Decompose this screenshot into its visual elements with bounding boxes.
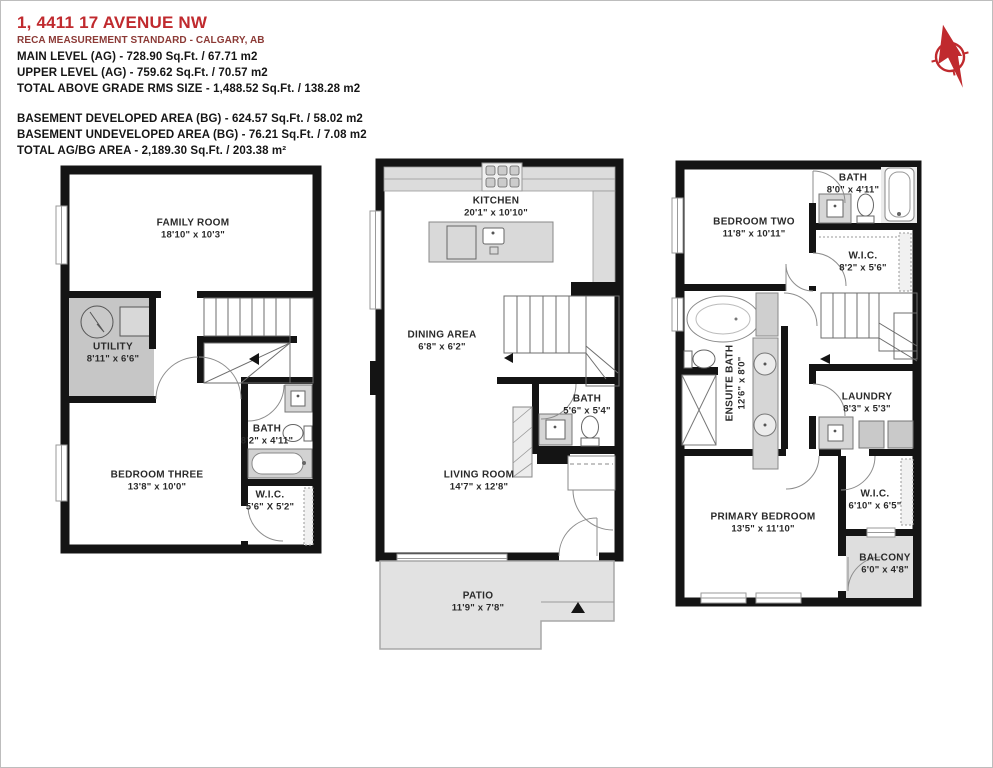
dryer-icon: [888, 421, 913, 448]
room-label-upper-bath: BATH 8'0" x 4'11": [827, 173, 879, 196]
total-agbg-area: TOTAL AG/BG AREA - 2,189.30 Sq.Ft. / 203…: [17, 143, 437, 159]
toilet-icon: [684, 350, 715, 368]
room-label-basement-wic: W.I.C. 5'6" X 5'2": [246, 490, 294, 513]
page-title: 1, 4411 17 AVENUE NW: [17, 13, 437, 33]
stove-icon: [482, 163, 522, 191]
bath-sink-icon: [285, 385, 312, 412]
main-level-area: MAIN LEVEL (AG) - 728.90 Sq.Ft. / 67.71 …: [17, 49, 437, 65]
basement-developed-area: BASEMENT DEVELOPED AREA (BG) - 624.57 Sq…: [17, 111, 437, 127]
bathtub-icon: [885, 168, 914, 221]
room-label-bedroom-two: BEDROOM TWO 11'8" x 10'11": [713, 217, 795, 240]
upper-floorplan: [672, 165, 921, 603]
shower-icon: [682, 375, 716, 445]
kitchen-island: [429, 222, 553, 262]
room-label-main-bath: BATH 5'6" x 5'4": [563, 394, 610, 417]
room-label-balcony: BALCONY 6'0" x 4'8": [859, 553, 911, 576]
room-label-basement-bath: BATH 8'2" x 4'11": [241, 424, 293, 447]
room-label-utility: UTILITY 8'11" x 6'6": [87, 342, 139, 365]
furnace-icon: [81, 306, 113, 338]
room-label-family-room: FAMILY ROOM 18'10" x 10'3": [157, 218, 230, 241]
room-label-patio: PATIO 11'9" x 7'8": [452, 591, 504, 614]
header: 1, 4411 17 AVENUE NW RECA MEASUREMENT ST…: [17, 13, 437, 159]
linen-closet-icon: [756, 293, 778, 336]
room-label-kitchen: KITCHEN 20'1" x 10'10": [464, 196, 528, 219]
toilet-icon: [857, 194, 874, 223]
double-vanity-icon: [753, 338, 778, 469]
closet-shelf-icon: [304, 488, 313, 545]
bathtub-icon: [248, 449, 312, 478]
water-tank-icon: [120, 307, 150, 336]
upper-level-area: UPPER LEVEL (AG) - 759.62 Sq.Ft. / 70.57…: [17, 65, 437, 81]
soaker-tub-icon: [687, 296, 759, 342]
floorplan-page: 1, 4411 17 AVENUE NW RECA MEASUREMENT ST…: [0, 0, 993, 768]
bath-sink-icon: [819, 194, 851, 223]
room-label-ensuite-bath: ENSUITE BATH 12'6" x 8'0": [725, 345, 748, 422]
below-grade-summary: BASEMENT DEVELOPED AREA (BG) - 624.57 Sq…: [17, 111, 437, 159]
room-label-primary-bedroom: PRIMARY BEDROOM 13'5" x 11'10": [710, 512, 815, 535]
toilet-icon: [581, 416, 599, 446]
room-label-bedroom-three: BEDROOM THREE 13'8" x 10'0": [111, 470, 204, 493]
fireplace-icon: [513, 407, 532, 477]
basement-undeveloped-area: BASEMENT UNDEVELOPED AREA (BG) - 76.21 S…: [17, 127, 437, 143]
room-label-primary-wic: W.I.C. 6'10" x 6'5": [849, 489, 902, 512]
total-above-grade-area: TOTAL ABOVE GRADE RMS SIZE - 1,488.52 Sq…: [17, 81, 437, 97]
closet-shelf-icon: [901, 459, 913, 525]
closet-icon: [568, 456, 615, 490]
north-arrow-icon: [919, 19, 981, 95]
washer-icon: [859, 421, 884, 448]
room-label-upper-wic: W.I.C. 8'2" x 5'6": [839, 251, 886, 274]
laundry-sink-icon: [819, 417, 853, 449]
room-label-laundry: LAUNDRY 8'3" x 5'3": [842, 392, 893, 415]
above-grade-summary: MAIN LEVEL (AG) - 728.90 Sq.Ft. / 67.71 …: [17, 49, 437, 97]
room-label-living-room: LIVING ROOM 14'7" x 12'8": [444, 470, 515, 493]
measurement-standard: RECA MEASUREMENT STANDARD - CALGARY, AB: [17, 35, 437, 46]
room-label-dining-area: DINING AREA 6'8" x 6'2": [407, 330, 476, 353]
